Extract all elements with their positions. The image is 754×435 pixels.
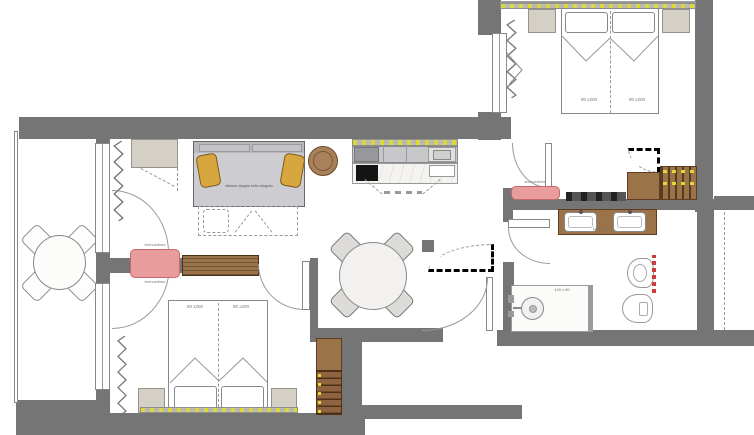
shower-mixer: [508, 311, 514, 317]
hall-bench-radiator: [511, 186, 560, 200]
wall-segment: [714, 196, 754, 210]
wall-segment: [310, 258, 318, 342]
sideboard: [131, 139, 178, 168]
bidet: [627, 258, 654, 288]
coffee-table: [308, 146, 338, 176]
curtain-zigzag-icon: [116, 336, 128, 414]
radiator-label: termosifone: [506, 180, 564, 184]
sofa: divano doppio letto singolo: [193, 141, 305, 207]
curtain-zigzag-icon: [112, 141, 125, 221]
sink-inner: [617, 216, 642, 228]
towel-rail: [652, 255, 656, 293]
bed-size-label: 90 x200: [571, 98, 607, 103]
nightstand: [528, 9, 556, 33]
sofa-back-cushion: [199, 144, 250, 152]
kitchen-peninsula-outline: [384, 191, 422, 194]
kitchen-led-strip: [352, 139, 458, 146]
wall-segment: [695, 0, 713, 212]
wall-segment: [96, 413, 365, 435]
adjacent-unit-boundary: [724, 212, 725, 330]
floor-plan-canvas: divano doppio letto singolo termosifone …: [0, 0, 754, 435]
radiator-label: termosifone: [127, 280, 183, 284]
sofa-label: divano doppio letto singolo: [212, 184, 286, 188]
media-console: [182, 255, 259, 276]
wall-segment: [497, 330, 754, 346]
bed-size-label: 90 x200: [177, 305, 213, 310]
wall-segment: [478, 0, 501, 35]
kitchen-sink: [433, 150, 451, 160]
cooktop: [356, 165, 378, 181]
nightstand: [662, 9, 690, 33]
toilet-tank: [639, 302, 648, 316]
bed-fold-icon: [170, 353, 268, 385]
wall-segment: [358, 405, 522, 419]
wall-segment: [16, 400, 96, 435]
sofa-back-cushion: [252, 144, 302, 152]
bed-pillow: [612, 12, 655, 33]
wardrobe-led-dots: [318, 372, 321, 413]
bed-double: 90 x200 90 x200: [168, 300, 268, 413]
shower-head-dot: [529, 305, 537, 313]
dashed-door-arc: [428, 244, 494, 272]
bed-pillow: [565, 12, 608, 33]
dashed-door-arc: [628, 148, 660, 173]
closet-led-dots: [663, 182, 694, 185]
sofa-bed-outline: [203, 209, 229, 233]
shower-size-label: 140 x 80: [547, 288, 577, 292]
vanity-sink: [613, 212, 646, 232]
shower-head-icon: [521, 297, 544, 320]
dining-table: [339, 242, 407, 310]
kitchen-drainer: [429, 165, 455, 177]
cabinet-swing-dash: [141, 168, 175, 187]
bed-size-label: 90 x200: [619, 98, 655, 103]
kitchen-divider: [383, 146, 384, 163]
window-mullion: [102, 284, 103, 389]
kitchen-divider: [406, 146, 407, 163]
bidet-bowl: [633, 264, 647, 282]
window-mullion: [499, 34, 500, 112]
balcony-table: [33, 235, 86, 290]
faucet-dot: [579, 210, 583, 214]
door-arc: [422, 278, 488, 331]
door-arc: [508, 228, 550, 264]
led-strip: [140, 407, 298, 413]
radiator-label: termosifone: [127, 243, 183, 247]
curtain-tieback-icon: [503, 48, 527, 92]
window: [95, 283, 110, 390]
coffee-table-ring: [313, 151, 333, 171]
vanity-size-label: 140 x 46: [586, 227, 614, 231]
wall-segment: [697, 210, 714, 332]
closet-wardrobe: [627, 172, 660, 200]
bed-double: 90 x200 90 x200: [561, 8, 659, 114]
door-leaf: [508, 219, 550, 228]
wall-segment: [422, 240, 434, 252]
closet-led-dots: [663, 170, 694, 173]
cabinet-swing-dash: [177, 168, 178, 191]
wall-segment: [342, 337, 362, 435]
wall-segment: [478, 112, 501, 140]
shower-mixer: [508, 295, 514, 303]
wall-shelf: [566, 192, 626, 201]
toilet: [622, 294, 653, 323]
faucet-dot: [628, 210, 632, 214]
wall-segment: [19, 117, 511, 139]
fridge: [354, 147, 379, 162]
balcony-railing: [14, 131, 18, 403]
bed-center-line: [610, 11, 611, 113]
window-mullion: [102, 144, 103, 252]
window: [95, 143, 110, 253]
bed-size-label: 90 x200: [223, 305, 259, 310]
radiator: [130, 249, 180, 278]
